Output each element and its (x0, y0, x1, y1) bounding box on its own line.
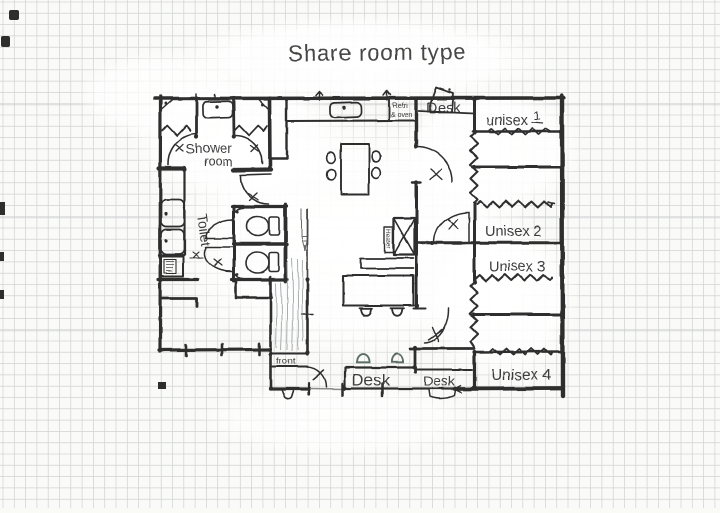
svg-text:Share room type: Share room type (288, 39, 467, 66)
svg-text:1: 1 (533, 108, 540, 123)
svg-text:Unisex 3: Unisex 3 (489, 259, 545, 275)
svg-text:Heater: Heater (385, 229, 392, 249)
svg-text:Unisex 4: Unisex 4 (491, 367, 552, 384)
svg-text:unisex: unisex (486, 113, 529, 129)
svg-text:Desk: Desk (423, 373, 456, 389)
svg-text:& oven: & oven (391, 112, 413, 119)
svg-text:Refri: Refri (392, 101, 408, 110)
svg-text:Desk: Desk (352, 372, 390, 390)
svg-text:front: front (276, 356, 295, 367)
svg-text:Unisex 2: Unisex 2 (485, 224, 541, 240)
svg-text:room: room (204, 155, 232, 169)
svg-text:Desk: Desk (427, 100, 462, 117)
svg-text:Shower: Shower (186, 141, 232, 156)
